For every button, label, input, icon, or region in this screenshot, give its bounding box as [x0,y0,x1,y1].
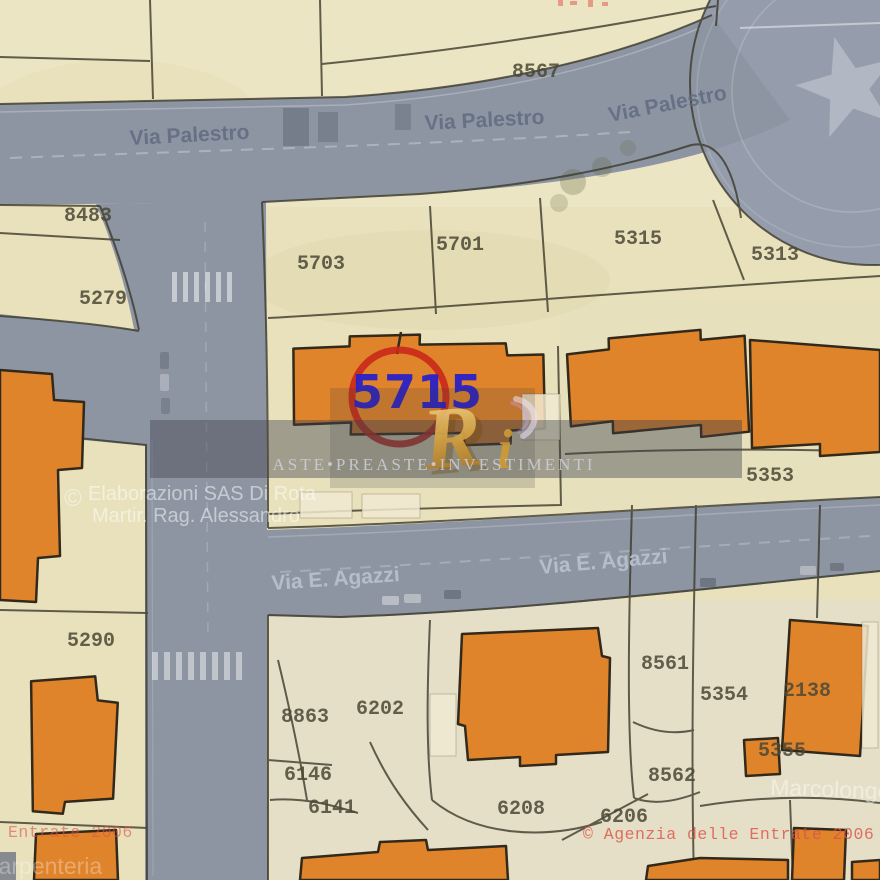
parcel-label-6202: 6202 [356,698,404,721]
parcel-label-5279: 5279 [79,288,127,311]
parcel-label-8483: 8483 [64,205,112,228]
credit-line-2: Martir. Rag. Alessandro [92,505,300,527]
parcel-label-8567: 8567 [512,61,560,84]
parcel-label-5701: 5701 [436,234,484,257]
credit-line-1: Elaborazioni SAS Di Rota [88,483,317,505]
building-east-row-b [750,340,880,456]
parcel-label-6141: 6141 [308,797,356,820]
parcel-label-2138: 2138 [783,680,831,703]
parcel-label-5313: 5313 [751,244,799,267]
parcel-label-8561: 8561 [641,653,689,676]
elaboration-credit: © Elaborazioni SAS Di Rota Martir. Rag. … [64,483,317,527]
cadastral-map: 8567 8483 5279 5703 5701 5315 5313 5353 … [0,0,880,880]
place-label-marcolongo: Marcolongo [770,774,880,804]
agency-stamp-left-partial: Entrate 2006 [8,823,133,842]
parcel-label-6208: 6208 [497,798,545,821]
parcel-label-5353: 5353 [746,465,794,488]
watermark-band-text: Aste•Preaste•Investimenti [272,455,595,474]
parcel-label-5354: 5354 [700,684,748,707]
parcel-label-6146: 6146 [284,764,332,787]
parcel-label-5703: 5703 [297,253,345,276]
credit-copyright-icon: © [64,485,82,512]
building-6208 [458,628,610,766]
parcel-label-8863: 8863 [281,706,329,729]
parcel-label-5290: 5290 [67,630,115,653]
parcel-label-8562: 8562 [648,765,696,788]
parcel-label-5355: 5355 [758,740,806,763]
parcel-label-5315: 5315 [614,228,662,251]
building-southeast-c [852,860,880,880]
place-label-carpenteria: Carpenteria [0,853,102,879]
agency-stamp-right: © Agenzia delle Entrate 2006 [583,825,874,844]
